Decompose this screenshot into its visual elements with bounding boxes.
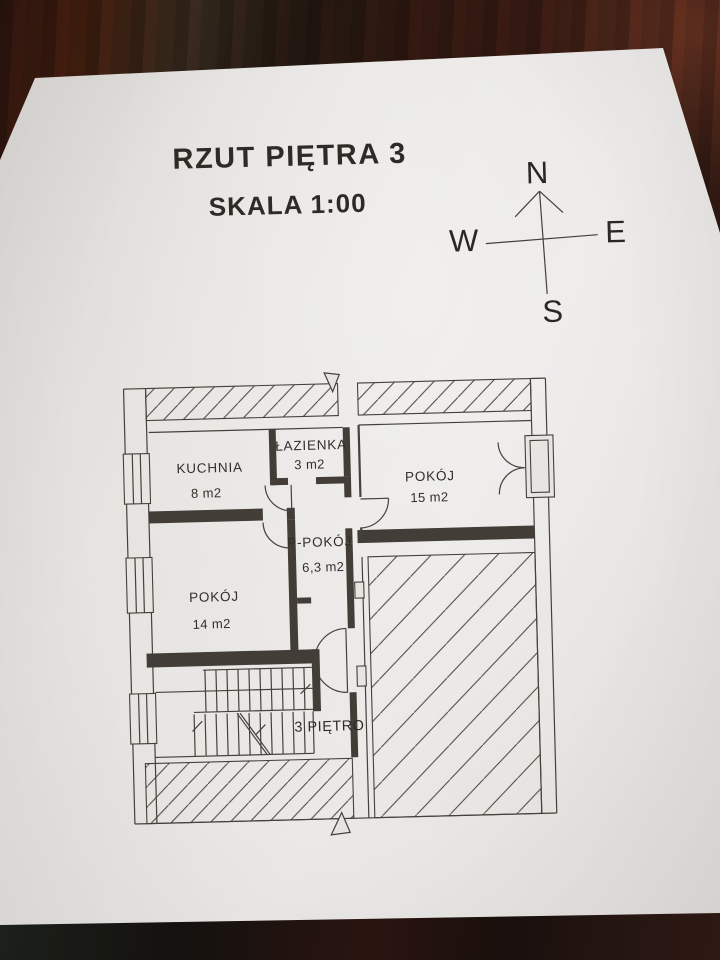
room-label-pokoj-14: POKÓJ — [189, 589, 239, 605]
window-icon — [130, 693, 157, 744]
window-icon — [126, 557, 153, 613]
compass-rose — [485, 190, 600, 296]
structural-walls — [136, 379, 542, 824]
window-icon — [123, 454, 150, 505]
compass-west-label: W — [449, 223, 479, 260]
room-label-pokoj-15: POKÓJ — [405, 468, 455, 484]
compass-east-label: E — [605, 214, 627, 251]
photo-background: RZUT PIĘTRA 3 SKALA 1:00 N W E S — [0, 0, 720, 960]
door-arc — [263, 522, 290, 549]
compass-south-label: S — [542, 294, 564, 331]
room-label-p-pokoj: P-POKÓJ — [287, 534, 352, 551]
door-arc — [359, 498, 389, 528]
page-title: RZUT PIĘTRA 3 — [172, 138, 407, 177]
stair-floor-label: 3 PIĘTRO — [294, 718, 364, 736]
staircase — [153, 667, 314, 757]
balcony-window-icon — [498, 435, 555, 498]
floor-plan-drawing — [0, 0, 720, 960]
section-arrow-bottom-icon — [331, 812, 351, 834]
room-area-pokoj-15: 15 m2 — [410, 489, 449, 505]
sheet-content: RZUT PIĘTRA 3 SKALA 1:00 N W E S — [0, 0, 720, 960]
compass-north-label: N — [525, 155, 548, 192]
room-label-kuchnia: KUCHNIA — [176, 460, 243, 477]
paper-sheet: RZUT PIĘTRA 3 SKALA 1:00 N W E S — [0, 0, 720, 960]
interior-walls — [141, 420, 541, 762]
exterior-walls — [124, 378, 557, 824]
door-arc — [314, 628, 348, 693]
adjacent-hatched-area — [368, 552, 542, 817]
section-arrow-top-icon — [324, 373, 339, 392]
room-area-kuchnia: 8 m2 — [191, 485, 222, 501]
scale-label: SKALA 1:00 — [208, 188, 367, 223]
north-arrow-icon — [515, 191, 566, 295]
room-label-lazienka: ŁAZIENKA — [275, 437, 347, 454]
room-area-p-pokoj: 6,3 m2 — [302, 559, 345, 575]
door-arc — [265, 485, 292, 512]
room-area-pokoj-14: 14 m2 — [192, 616, 231, 632]
room-area-lazienka: 3 m2 — [294, 456, 325, 472]
